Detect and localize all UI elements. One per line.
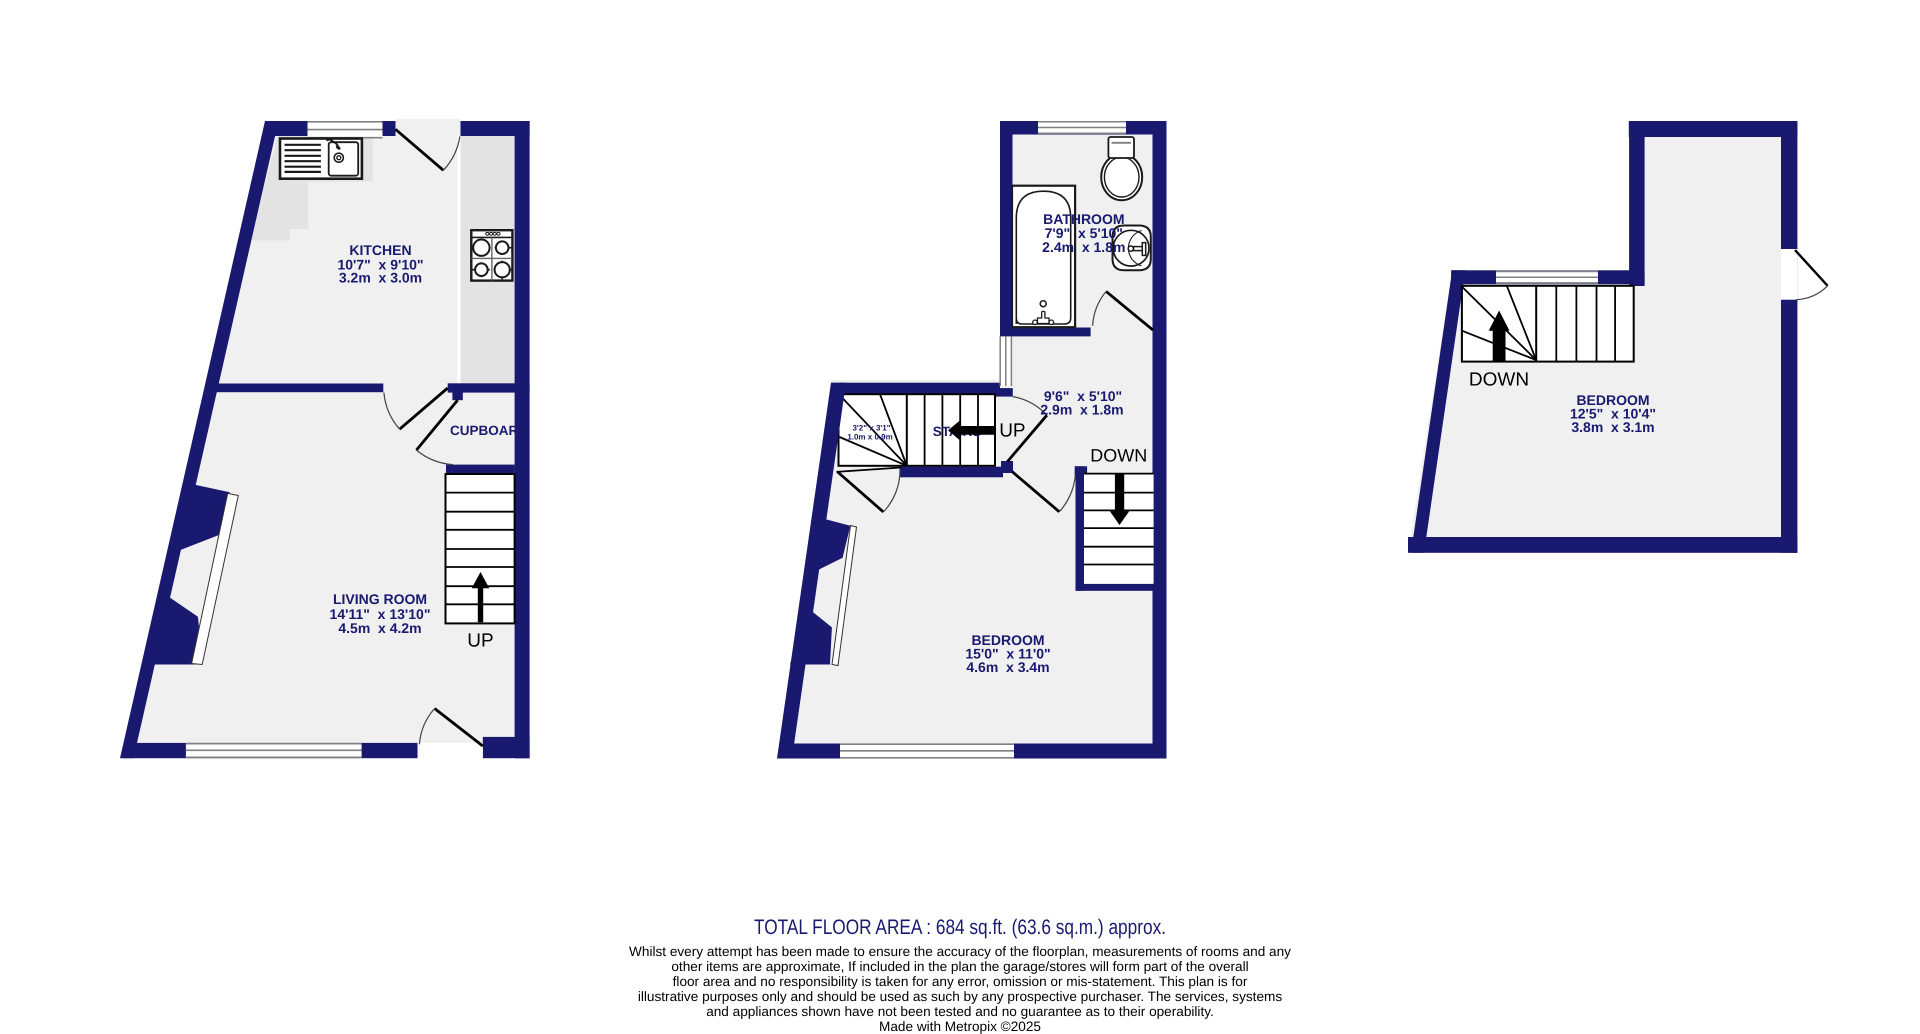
svg-text:3.2m x 3.0m: 3.2m x 3.0m xyxy=(339,270,422,286)
svg-text:illustrative purposes only and: illustrative purposes only and should be… xyxy=(638,989,1282,1004)
svg-text:3.8m x 3.1m: 3.8m x 3.1m xyxy=(1571,419,1654,435)
svg-text:and appliances shown have not: and appliances shown have not been teste… xyxy=(706,1004,1214,1019)
svg-text:UP: UP xyxy=(467,631,493,652)
svg-text:LIVING ROOM: LIVING ROOM xyxy=(333,591,427,607)
svg-text:Whilst every attempt has been: Whilst every attempt has been made to en… xyxy=(629,944,1291,959)
svg-text:2.9m x 1.8m: 2.9m x 1.8m xyxy=(1040,402,1123,418)
svg-text:other items are approximate, I: other items are approximate, If included… xyxy=(671,959,1248,974)
svg-text:floor area and no responsibili: floor area and no responsibility is take… xyxy=(673,974,1248,989)
svg-text:2.4m x 1.8m: 2.4m x 1.8m xyxy=(1042,239,1125,255)
svg-text:4.5m x 4.2m: 4.5m x 4.2m xyxy=(338,620,421,636)
svg-text:Made with Metropix ©2025: Made with Metropix ©2025 xyxy=(879,1019,1041,1034)
svg-text:DOWN: DOWN xyxy=(1469,370,1529,391)
svg-text:UP: UP xyxy=(999,421,1025,442)
svg-text:TOTAL FLOOR AREA : 684 sq.ft.: TOTAL FLOOR AREA : 684 sq.ft. (63.6 sq.m… xyxy=(754,916,1166,939)
svg-text:1.0m x 0.9m: 1.0m x 0.9m xyxy=(847,433,892,442)
svg-text:DOWN: DOWN xyxy=(1090,446,1147,466)
svg-text:4.6m x 3.4m: 4.6m x 3.4m xyxy=(966,659,1049,675)
svg-text:3'2" x 3'1": 3'2" x 3'1" xyxy=(852,424,890,433)
